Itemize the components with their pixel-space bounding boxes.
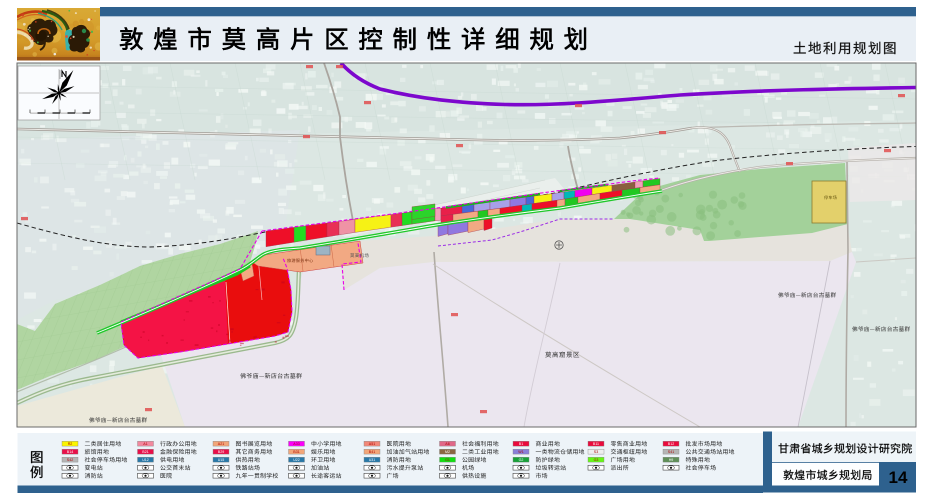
svg-text:B14: B14 (67, 450, 73, 454)
svg-text:B1: B1 (519, 442, 523, 446)
svg-text:B31: B31 (293, 450, 299, 454)
svg-text:S42: S42 (67, 458, 73, 462)
svg-text:14: 14 (889, 468, 908, 487)
svg-text:U12: U12 (142, 458, 149, 462)
svg-text:U22: U22 (293, 458, 300, 462)
svg-text:U15: U15 (218, 458, 225, 462)
svg-text:A33: A33 (293, 442, 299, 446)
svg-text:A51: A51 (369, 442, 375, 446)
svg-text:A6: A6 (445, 442, 449, 446)
svg-text:S3: S3 (594, 450, 598, 454)
svg-text:A21: A21 (218, 442, 224, 446)
svg-text:B11: B11 (593, 442, 599, 446)
svg-text:S41: S41 (668, 450, 674, 454)
svg-text:A1: A1 (143, 442, 147, 446)
svg-text:B21: B21 (142, 450, 148, 454)
svg-text:M2: M2 (445, 450, 450, 454)
svg-text:B12: B12 (668, 442, 674, 446)
svg-text:H9: H9 (669, 458, 674, 462)
svg-text:B29: B29 (218, 450, 224, 454)
svg-text:G1: G1 (445, 458, 450, 462)
svg-text:U31: U31 (369, 458, 376, 462)
svg-text:W1: W1 (518, 450, 523, 454)
svg-text:R2: R2 (68, 442, 73, 446)
svg-text:G3: G3 (594, 458, 599, 462)
svg-text:B41: B41 (369, 450, 375, 454)
svg-text:G2: G2 (519, 458, 524, 462)
